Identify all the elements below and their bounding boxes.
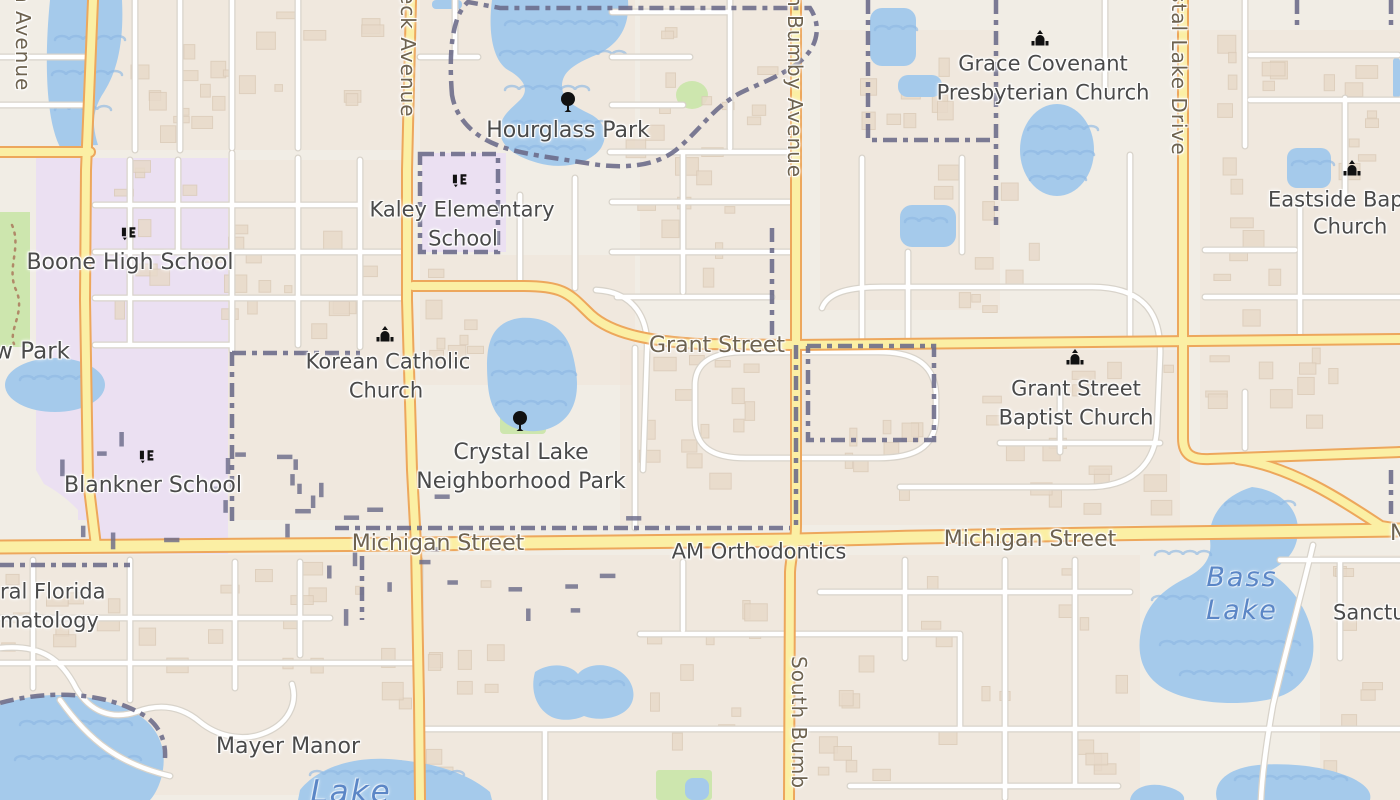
map-canvas[interactable]: Hourglass ParkKaley ElementarySchoolBoon… xyxy=(0,0,1400,800)
kaley-school-area xyxy=(422,153,506,252)
basemap-tiles xyxy=(0,0,1400,800)
twin-ponds xyxy=(533,665,633,720)
crystal-lake xyxy=(487,318,577,431)
